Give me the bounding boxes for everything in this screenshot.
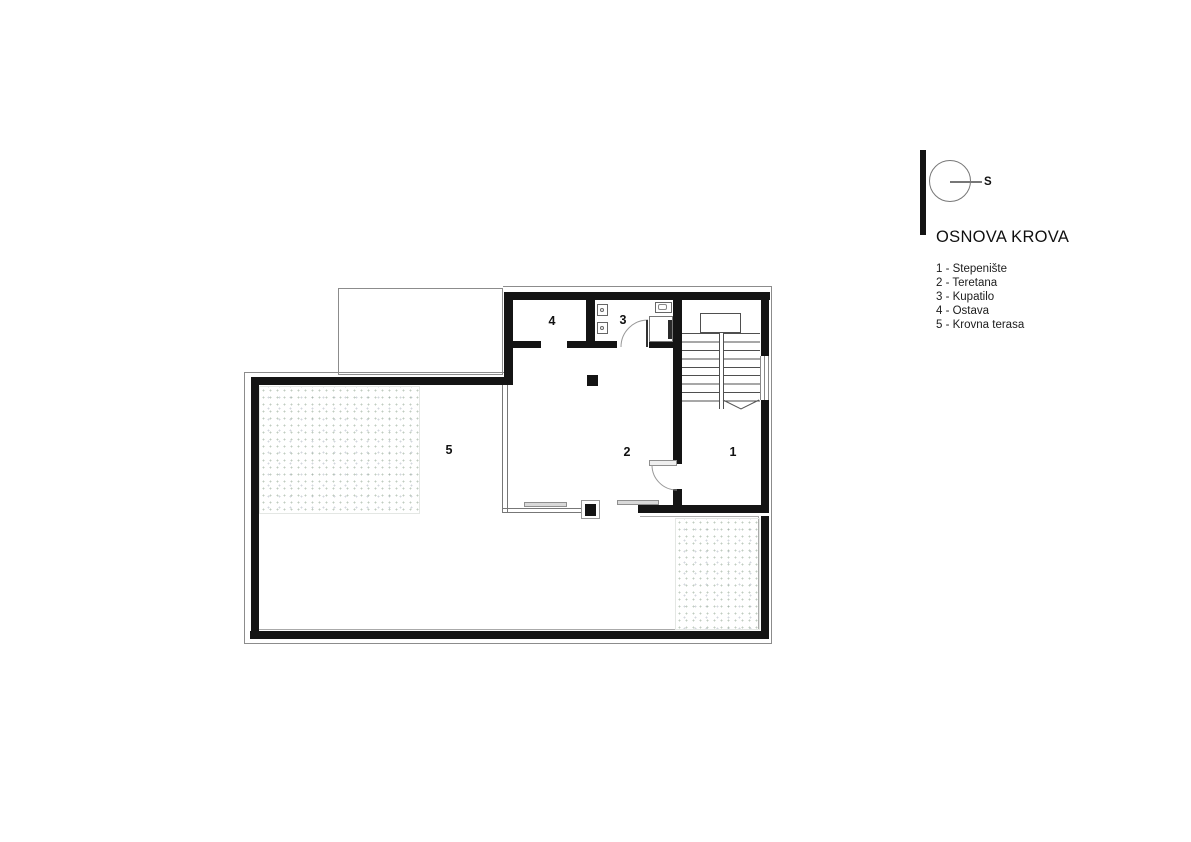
wall-building-left [504, 292, 513, 385]
wall-terrace-right [761, 516, 769, 638]
wall-building-right-upper [761, 292, 769, 356]
outline-right [771, 286, 772, 644]
room-label-ostava: 4 [549, 314, 556, 328]
gym-glass-wall-left-outer [502, 385, 503, 513]
roof-plan-sheet: 1 2 3 4 5 S OSNOVA KROVA 1 - Stepenište … [0, 0, 1191, 842]
legend-item-krovna-terasa: 5 - Krovna terasa [936, 318, 1024, 332]
gym-glass-wall-bottom-inner [502, 512, 588, 513]
room-label-teretana: 2 [624, 445, 631, 459]
gym-glass-wall-bottom-outer [502, 508, 588, 509]
sliding-door-panel-right [617, 500, 659, 505]
legend-item-teretana: 2 - Teretana [936, 276, 1024, 290]
room-label-krovna-terasa: 5 [446, 443, 453, 457]
drawing-title: OSNOVA KROVA [936, 228, 1069, 247]
wall-interior-storage-bath [567, 341, 617, 348]
column-upper [587, 375, 598, 386]
skylight-texture-area-right [675, 518, 760, 630]
wall-storage-bath-divider [586, 300, 595, 341]
stair-window-frame-right [768, 356, 769, 400]
bath-appliance-top-dot [600, 308, 604, 312]
lower-roof-outline [338, 288, 503, 375]
gym-door-leaf [649, 460, 677, 466]
wall-terrace-left [251, 377, 259, 639]
wall-interior-storage-left [506, 341, 541, 348]
bath-sink-basin [658, 304, 667, 310]
legend-item-kupatilo: 3 - Kupatilo [936, 290, 1024, 304]
wall-stair-divider-lower [673, 489, 682, 506]
outline-building-top [503, 286, 772, 287]
skylight-texture-area-left [259, 386, 420, 514]
sliding-door-panel-left [524, 502, 567, 507]
stair-landing [700, 313, 741, 333]
stair-window-frame-left [760, 356, 761, 400]
north-marker-bar [920, 150, 926, 235]
wall-terrace-bottom [250, 631, 769, 639]
wall-building-right-lower [761, 400, 769, 505]
outline-left [244, 372, 245, 644]
plan-annotations-svg [0, 0, 1191, 842]
legend: 1 - Stepenište 2 - Teretana 3 - Kupatilo… [936, 262, 1024, 332]
bath-appliance-bottom-dot [600, 326, 604, 330]
legend-item-stepeniste: 1 - Stepenište [936, 262, 1024, 276]
room-label-kupatilo: 3 [620, 313, 627, 327]
stair-center-stringer [719, 333, 724, 409]
room-label-stepeniste: 1 [730, 445, 737, 459]
column-lower [585, 504, 596, 516]
north-compass-line [950, 181, 982, 183]
bath-radiator [668, 320, 672, 339]
outline-bottom [244, 643, 772, 644]
stair-window-glazing [764, 356, 765, 400]
wall-stair-divider-upper [673, 300, 682, 464]
wall-building-top [505, 292, 770, 300]
legend-item-ostava: 4 - Ostava [936, 304, 1024, 318]
gym-glass-wall-left-inner [507, 385, 508, 513]
wall-building-bottom [638, 505, 769, 513]
gym-door-arc [652, 465, 677, 490]
outline-terrace-top [244, 372, 506, 373]
north-label: S [984, 176, 992, 188]
outline-building-bottom-face [640, 516, 759, 517]
wall-terrace-top [251, 377, 507, 385]
